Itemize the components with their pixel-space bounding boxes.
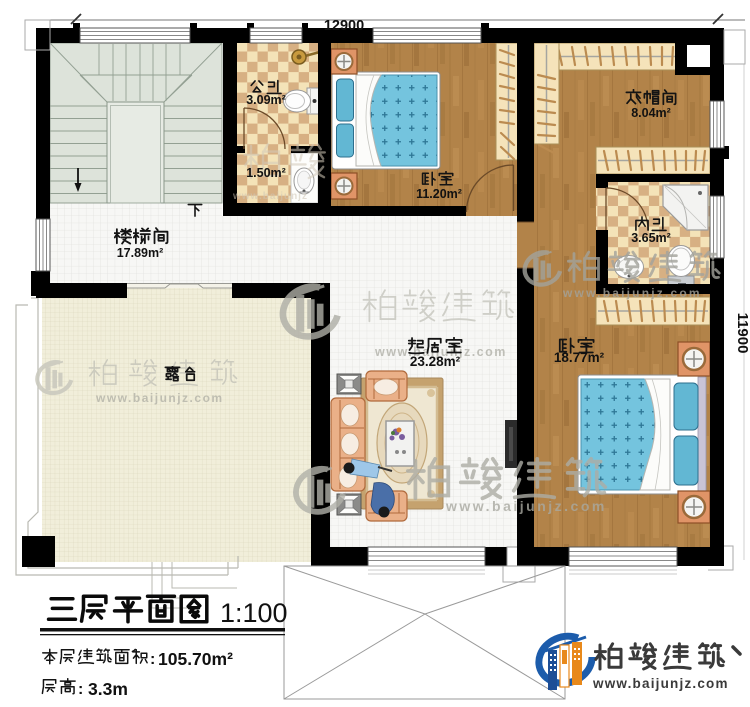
svg-text::: :: [78, 681, 83, 698]
svg-text:www.baijunjz.com: www.baijunjz.com: [562, 286, 702, 300]
svg-text:18.77m²: 18.77m²: [554, 350, 605, 365]
svg-text:105.70m²: 105.70m²: [158, 649, 233, 669]
svg-text::: :: [150, 651, 155, 668]
svg-text:3.3m: 3.3m: [88, 679, 128, 699]
svg-text:www.baijunjz.com: www.baijunjz.com: [445, 498, 607, 514]
svg-text:www.baijunjz.com: www.baijunjz.com: [592, 676, 729, 691]
svg-text:www.baijunjz: www.baijunjz: [232, 191, 308, 202]
svg-text:8.04m²: 8.04m²: [631, 106, 671, 120]
svg-text:1:100: 1:100: [220, 598, 288, 628]
svg-text:23.28m²: 23.28m²: [410, 354, 461, 369]
svg-text:3.65m²: 3.65m²: [631, 231, 671, 245]
svg-text:11.20m²: 11.20m²: [416, 187, 462, 201]
svg-text:11900: 11900: [734, 313, 750, 354]
svg-text:1.50m²: 1.50m²: [246, 166, 286, 180]
svg-text:12900: 12900: [324, 18, 364, 34]
svg-text:www.baijunjz.com: www.baijunjz.com: [95, 391, 224, 405]
svg-text:3.09m²: 3.09m²: [246, 93, 286, 107]
svg-text:17.89m²: 17.89m²: [117, 246, 164, 260]
